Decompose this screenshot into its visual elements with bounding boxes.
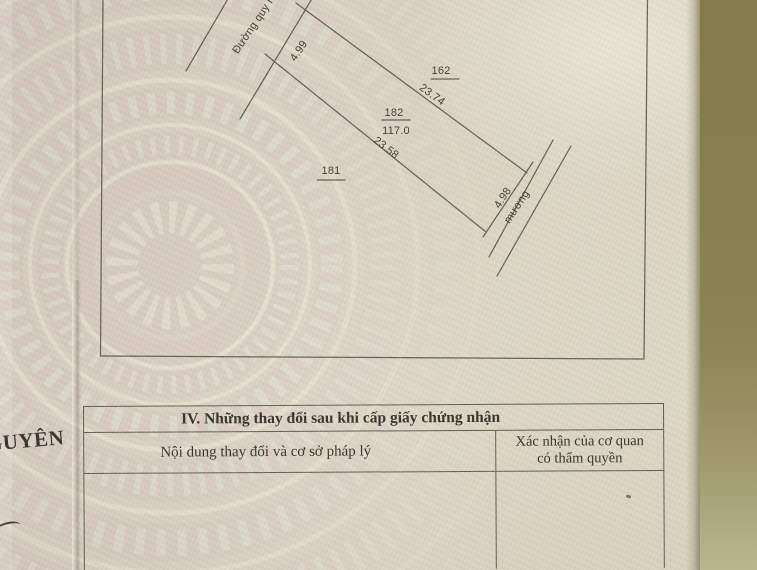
changes-table-header-row: Nội dung thay đổi và cơ sở pháp lý Xác n… <box>84 430 663 474</box>
changes-table-title: IV. Những thay đổi sau khi cấp giấy chứn… <box>181 408 500 428</box>
changes-table-title-row: IV. Những thay đổi sau khi cấp giấy chứn… <box>84 404 663 433</box>
parcel-number-181: 181 <box>322 165 341 177</box>
frame-bottom <box>101 356 645 359</box>
parcel-number-182: 182 <box>385 107 404 119</box>
photo-of-land-certificate: Đường quy h 4.99 162 23.74 182 117.0 23.… <box>0 0 757 570</box>
parcel-number-162: 162 <box>432 65 451 77</box>
page-right-edge-shadow <box>686 0 700 570</box>
frame-left <box>101 0 104 356</box>
column-header-content-label: Nội dung thay đổi và cơ sở pháp lý <box>160 443 371 461</box>
changes-table-empty-row <box>84 471 663 570</box>
frame-right <box>644 0 648 359</box>
desk-background <box>700 0 757 570</box>
parcel-area-182: 117.0 <box>382 125 410 137</box>
content-cell-empty <box>84 472 497 570</box>
column-header-confirmation-line2: có thẩm quyền <box>496 450 663 468</box>
changes-table: IV. Những thay đổi sau khi cấp giấy chứn… <box>83 403 665 570</box>
confirmation-cell-empty <box>496 471 664 569</box>
column-header-confirmation: Xác nhận của cơ quan có thẩm quyền <box>496 430 663 471</box>
column-header-confirmation-line1: Xác nhận của cơ quan <box>496 433 663 451</box>
road-line-outer <box>186 0 229 71</box>
certificate-page: Đường quy h 4.99 162 23.74 182 117.0 23.… <box>0 0 700 570</box>
boundary-upper <box>296 3 527 173</box>
column-header-content: Nội dung thay đổi và cơ sở pháp lý <box>84 431 496 473</box>
